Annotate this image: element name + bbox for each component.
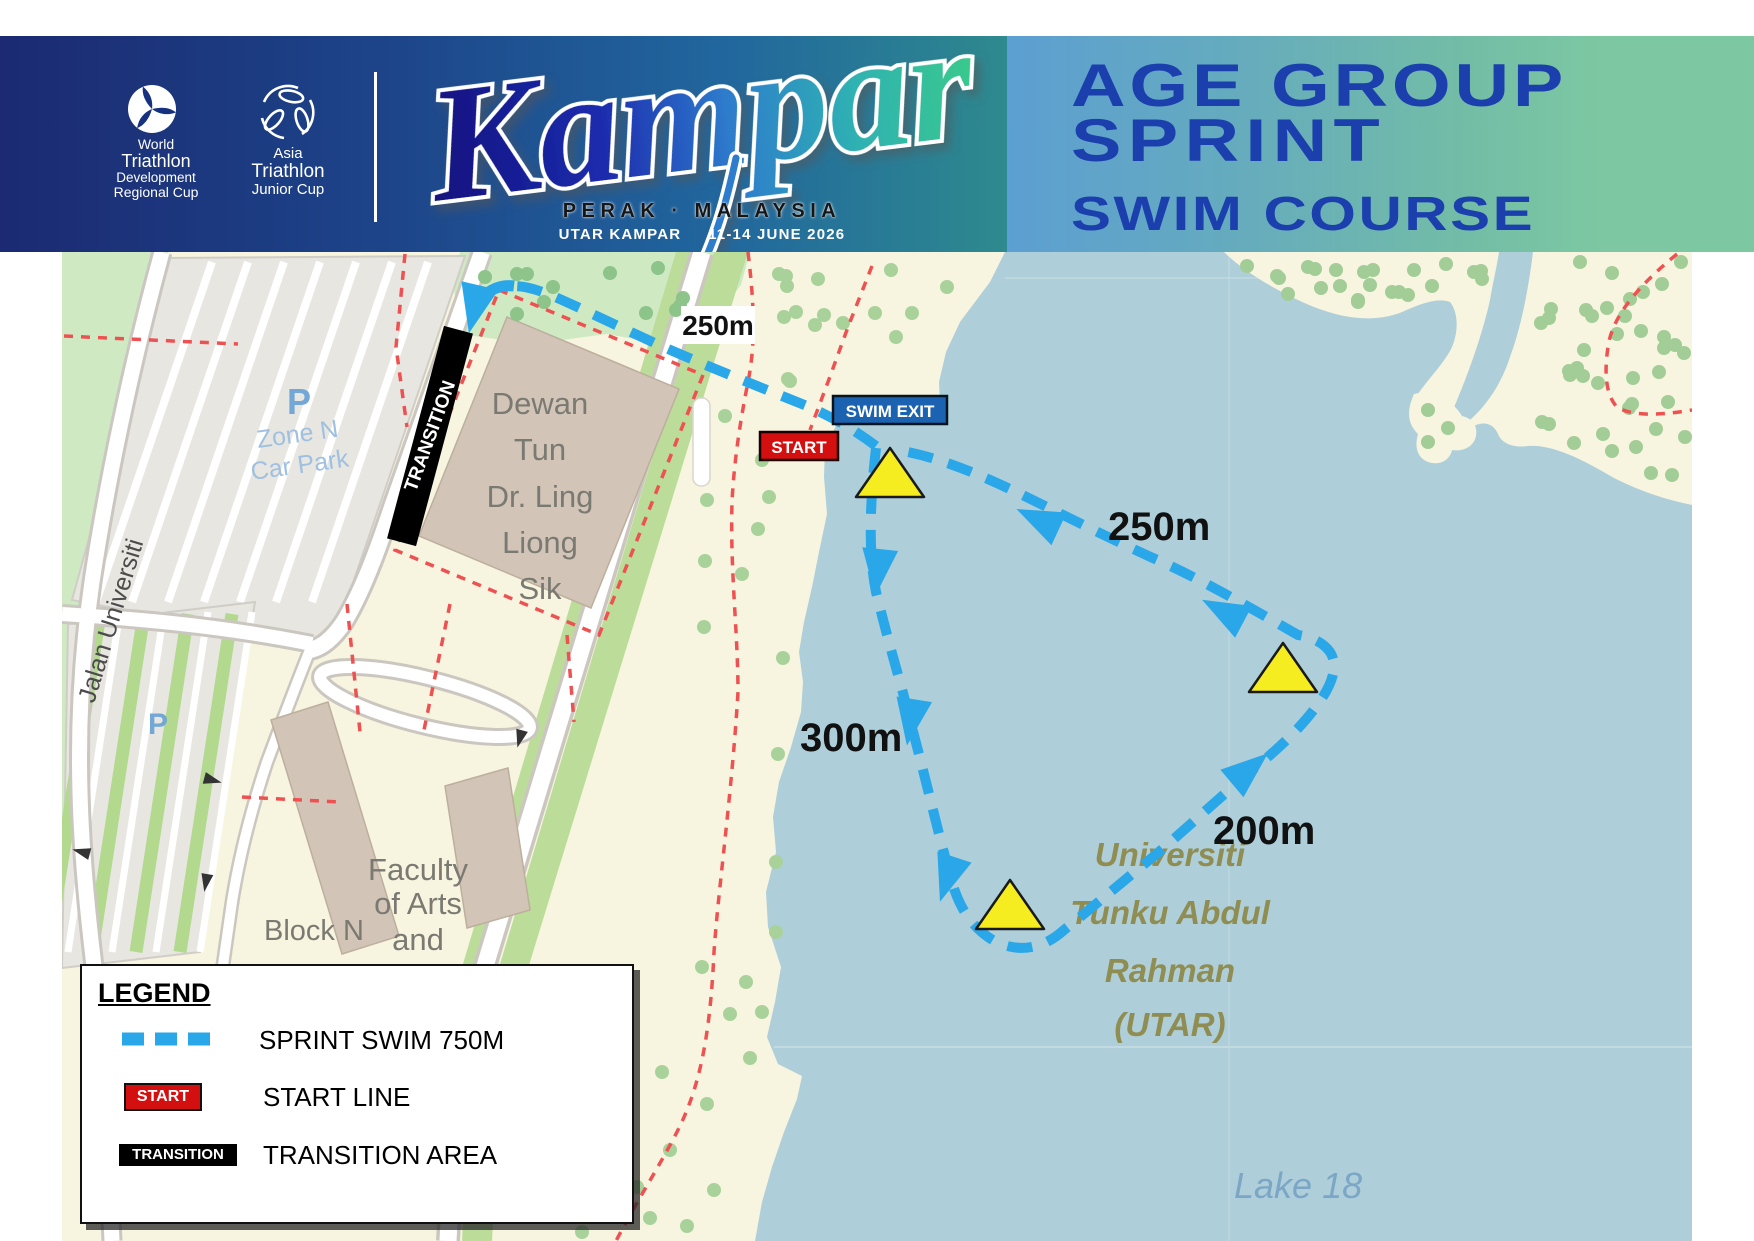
svg-text:Liong: Liong bbox=[502, 525, 578, 560]
svg-text:P: P bbox=[287, 381, 311, 422]
svg-text:Block N: Block N bbox=[264, 915, 364, 947]
svg-text:Dewan: Dewan bbox=[492, 386, 589, 421]
svg-text:300m: 300m bbox=[800, 716, 902, 760]
svg-text:250m: 250m bbox=[682, 310, 754, 341]
svg-text:START: START bbox=[771, 438, 827, 457]
svg-text:P: P bbox=[148, 708, 168, 741]
svg-text:Rahman: Rahman bbox=[1105, 952, 1235, 989]
svg-text:Tunku Abdul: Tunku Abdul bbox=[1070, 894, 1271, 931]
svg-text:Tun: Tun bbox=[514, 432, 566, 467]
svg-text:and: and bbox=[392, 922, 444, 957]
svg-text:Faculty: Faculty bbox=[368, 852, 468, 887]
svg-text:(UTAR): (UTAR) bbox=[1114, 1006, 1225, 1043]
svg-text:Lake 18: Lake 18 bbox=[1234, 1165, 1362, 1206]
svg-text:SWIM EXIT: SWIM EXIT bbox=[846, 402, 935, 421]
svg-text:Dr. Ling: Dr. Ling bbox=[487, 479, 594, 514]
svg-text:200m: 200m bbox=[1213, 809, 1315, 853]
svg-text:250m: 250m bbox=[1108, 505, 1210, 549]
svg-text:Sik: Sik bbox=[518, 571, 562, 606]
svg-text:of Arts: of Arts bbox=[374, 886, 462, 921]
